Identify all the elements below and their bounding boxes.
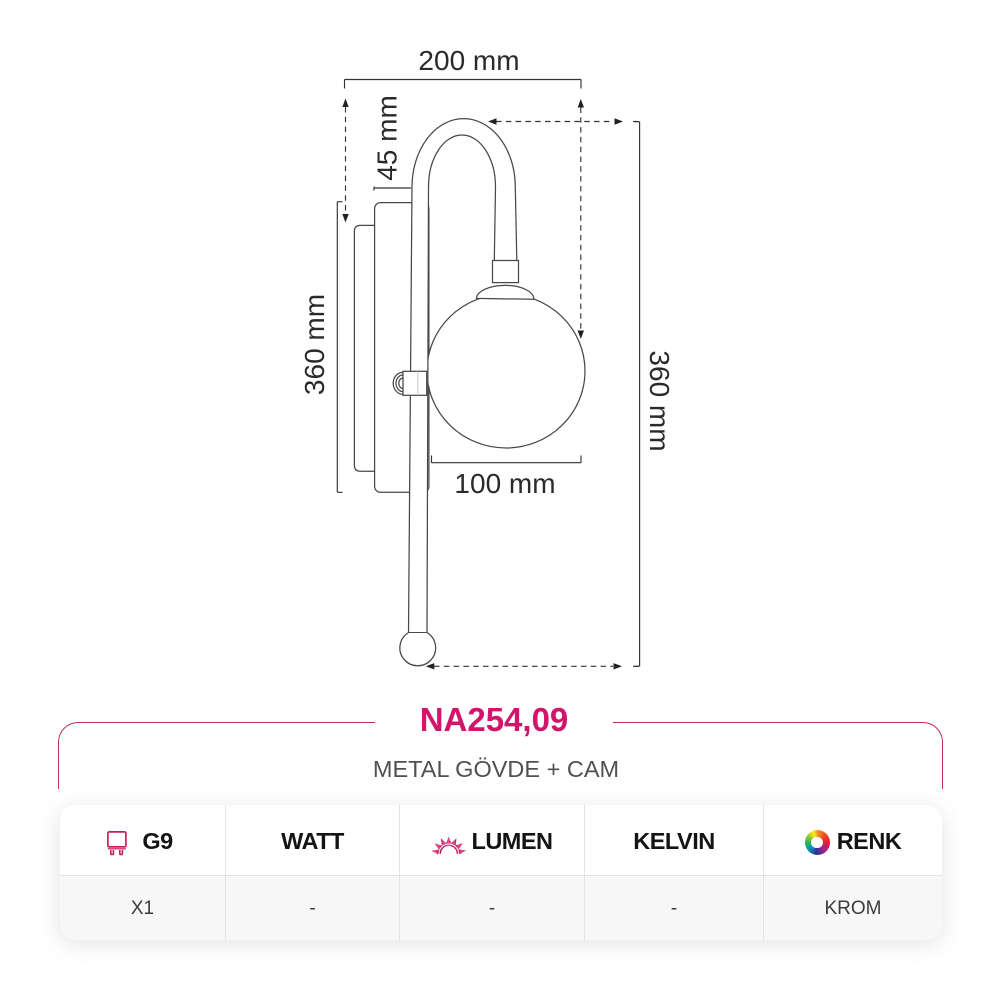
svg-text:100 mm: 100 mm [454,468,555,499]
svg-text:200 mm: 200 mm [418,45,519,76]
svg-text:360 mm: 360 mm [299,294,330,395]
svg-text:360 mm: 360 mm [644,350,675,451]
svg-text:45 mm: 45 mm [372,95,403,181]
